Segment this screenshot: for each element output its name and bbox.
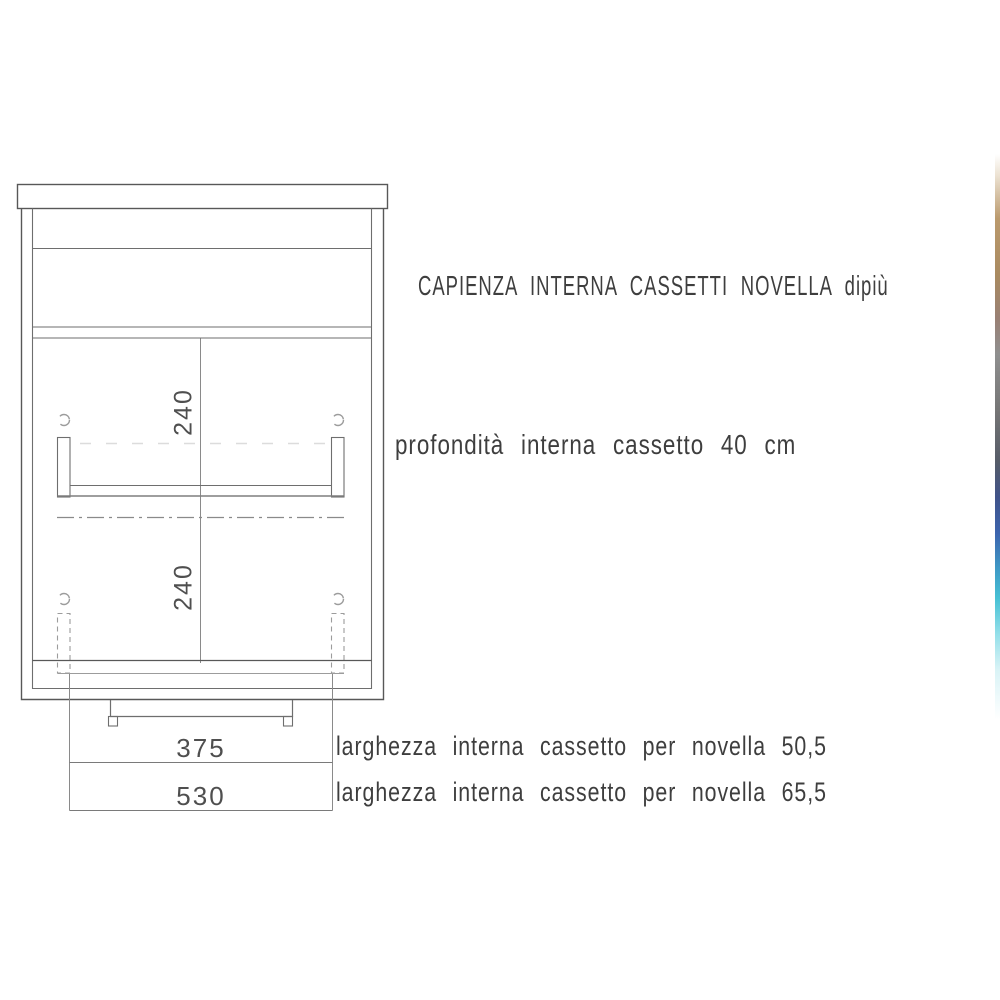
dim-label-upper-drawer-height: 240 [170,388,199,436]
width-note-small: larghezza interna cassetto per novella 5… [336,731,827,762]
plinth-foot-left [109,717,118,727]
dim-label-inner-width: 375 [141,733,261,764]
lower-right-hook [333,594,344,605]
cabinet-inner-walls [33,209,372,689]
dim-label-outer-width: 530 [141,781,261,812]
upper-right-hook [333,415,344,426]
upper-drawer-left-side [58,438,71,498]
width-note-large: larghezza interna cassetto per novella 6… [336,777,827,808]
cabinet-outer-body [22,209,384,700]
lower-drawer-right-side [332,614,345,674]
plinth [111,700,293,717]
countertop [18,185,388,209]
scanned-technical-sheet: CAPIENZA INTERNA CASSETTI NOVELLA dipiù … [0,0,1000,1000]
cabinet-drawing [0,0,1000,1000]
upper-drawer-right-side [332,438,345,498]
page-title: CAPIENZA INTERNA CASSETTI NOVELLA dipiù [418,270,889,302]
plinth-foot-right [284,717,293,727]
edge-color-strip [995,154,1000,870]
lower-drawer-left-side [58,614,71,674]
lower-left-hook [59,594,70,605]
upper-left-hook [59,415,70,426]
depth-note: profondità interna cassetto 40 cm [395,429,796,461]
dim-label-lower-drawer-height: 240 [170,563,199,611]
